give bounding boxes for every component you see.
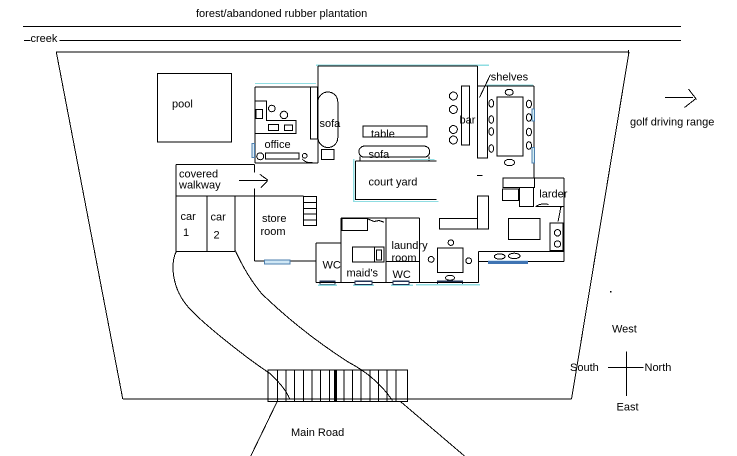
svg-text:WC: WC: [393, 269, 411, 281]
svg-text:walkway: walkway: [178, 180, 221, 192]
svg-text:North: North: [645, 362, 672, 374]
svg-text:store: store: [262, 213, 286, 225]
svg-text:Main Road: Main Road: [291, 427, 344, 439]
svg-text:WC: WC: [323, 260, 341, 272]
svg-text:sofa: sofa: [320, 118, 342, 130]
svg-text:creek: creek: [31, 33, 58, 45]
svg-text:East: East: [617, 402, 639, 414]
svg-text:pool: pool: [172, 99, 193, 111]
svg-text:South: South: [570, 362, 599, 374]
svg-text:table: table: [371, 129, 395, 141]
svg-text:room: room: [261, 226, 286, 238]
svg-text:West: West: [612, 324, 637, 336]
svg-text:court yard: court yard: [369, 177, 418, 189]
svg-text:car: car: [181, 211, 197, 223]
svg-text:car: car: [211, 212, 227, 224]
svg-text:forest/abandoned rubber planta: forest/abandoned rubber plantation: [196, 8, 367, 20]
svg-text:room: room: [392, 253, 417, 265]
svg-text:maid's: maid's: [347, 267, 379, 279]
svg-text:laundry: laundry: [392, 240, 429, 252]
svg-text:golf driving range: golf driving range: [630, 116, 714, 128]
svg-text:1: 1: [183, 227, 189, 239]
svg-text:2: 2: [214, 230, 220, 242]
svg-text:larder: larder: [539, 189, 567, 201]
svg-text:bar: bar: [460, 115, 476, 127]
svg-text:sofa: sofa: [369, 149, 391, 161]
svg-text:office: office: [265, 139, 291, 151]
svg-text:shelves: shelves: [491, 71, 529, 83]
